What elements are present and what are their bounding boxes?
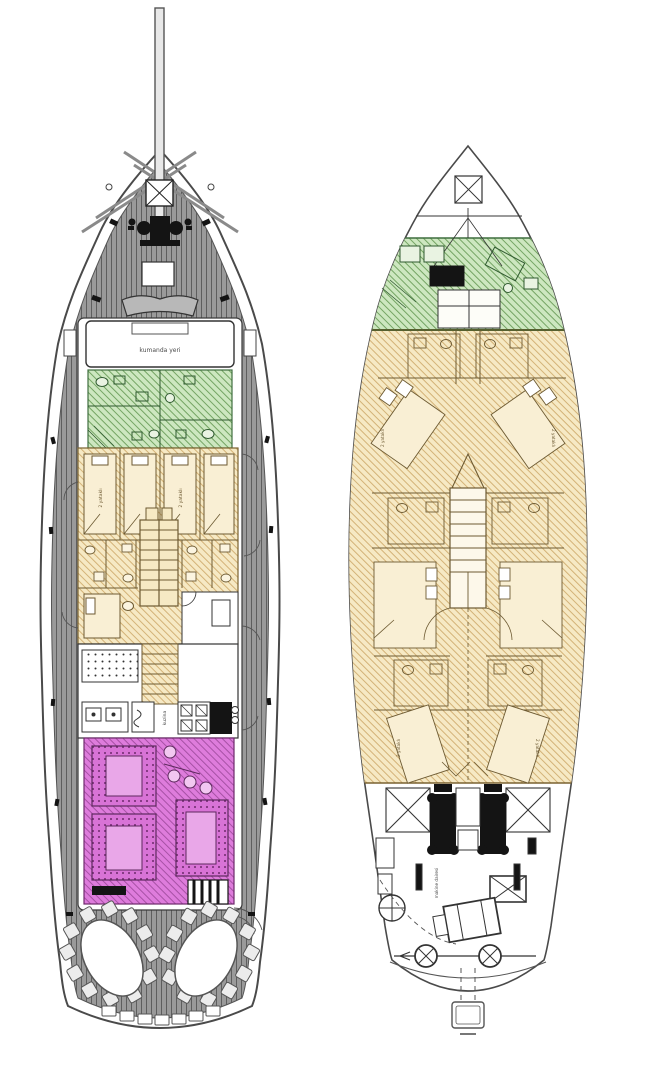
sink-unit bbox=[82, 702, 154, 732]
rcabin-label-3: 2 yataklı bbox=[396, 739, 401, 757]
galley-zone: kuzina bbox=[78, 644, 239, 738]
storage-room bbox=[182, 592, 238, 644]
rcabin-label-1: 2 yataklı bbox=[380, 429, 385, 447]
rcabin-label-4: 2 yataklı bbox=[535, 739, 540, 757]
guest-cabins-zone: 2 yataklı 2 yataklı bbox=[78, 448, 238, 644]
main-stairs bbox=[140, 508, 178, 606]
salon-table bbox=[176, 800, 228, 876]
salon-sofa-2 bbox=[92, 814, 156, 880]
galley-label: kuzina bbox=[162, 710, 168, 725]
skylight bbox=[142, 262, 174, 286]
companionway-hatch bbox=[188, 880, 228, 904]
deck-plan-document: kumanda yeri bbox=[0, 0, 652, 1080]
rcabin-label-2: 2 yataklı bbox=[551, 429, 556, 447]
wheelhouse-label: kumanda yeri bbox=[139, 347, 181, 354]
cabin-label-1: 2 yataklı bbox=[98, 488, 104, 507]
lower-deck-plan: 2 yataklı 2 yataklı 2 yataklı 2 yataklı bbox=[338, 138, 606, 1053]
engine-room-label: makine dairesi bbox=[434, 868, 439, 899]
side-bench-port bbox=[64, 330, 76, 356]
stove bbox=[178, 702, 210, 734]
crew-quarters-zone bbox=[88, 370, 232, 448]
fridge bbox=[210, 702, 232, 734]
cabin-label-2: 2 yataklı bbox=[178, 488, 184, 507]
main-deck-plan: kumanda yeri bbox=[36, 0, 298, 1060]
side-bench-starboard bbox=[244, 330, 256, 356]
salon-sofa-1 bbox=[92, 746, 156, 806]
counter-dotted bbox=[82, 650, 138, 682]
wheelhouse: kumanda yeri bbox=[64, 321, 256, 367]
salon-zone bbox=[84, 738, 234, 904]
